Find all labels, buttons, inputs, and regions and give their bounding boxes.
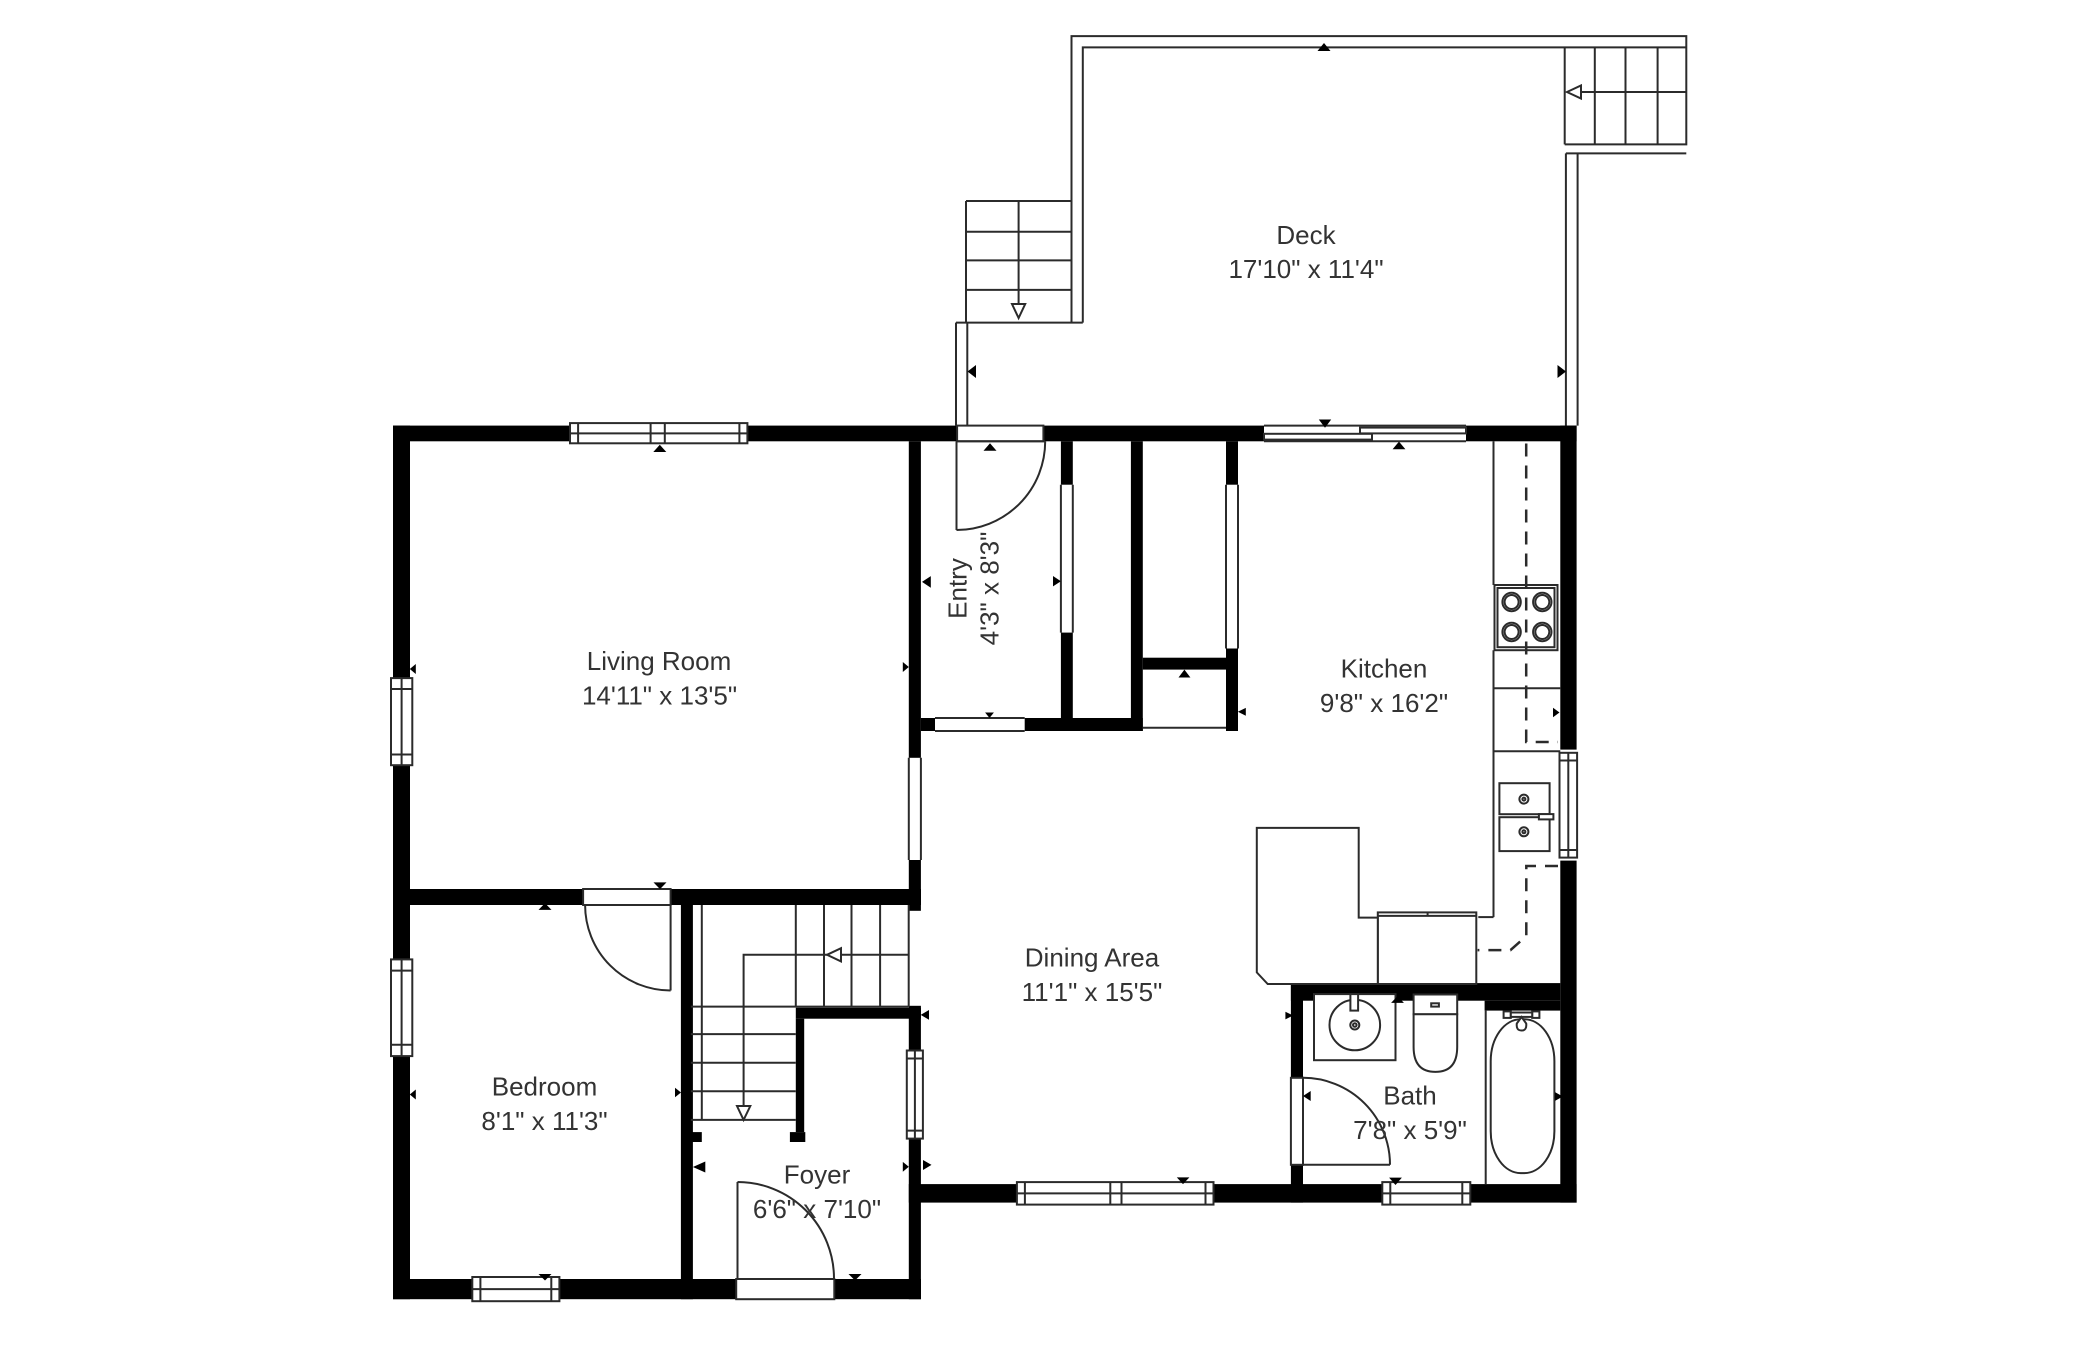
svg-text:Dining Area: Dining Area [1025, 943, 1160, 973]
svg-text:4'3" x 8'3": 4'3" x 8'3" [975, 532, 1005, 646]
svg-text:Kitchen: Kitchen [1341, 654, 1428, 684]
svg-text:6'6" x 7'10": 6'6" x 7'10" [753, 1194, 881, 1224]
svg-text:7'8" x 5'9": 7'8" x 5'9" [1353, 1115, 1467, 1145]
svg-text:14'11" x 13'5": 14'11" x 13'5" [582, 681, 737, 711]
svg-text:9'8" x 16'2": 9'8" x 16'2" [1320, 688, 1448, 718]
svg-text:Foyer: Foyer [784, 1160, 851, 1190]
svg-text:Bedroom: Bedroom [492, 1072, 598, 1102]
svg-text:8'1" x 11'3": 8'1" x 11'3" [481, 1106, 607, 1136]
svg-text:Bath: Bath [1383, 1081, 1437, 1111]
svg-text:Living Room: Living Room [587, 646, 732, 676]
svg-text:Entry: Entry [943, 558, 973, 619]
svg-text:17'10" x 11'4": 17'10" x 11'4" [1228, 254, 1383, 284]
svg-text:Deck: Deck [1276, 220, 1336, 250]
svg-text:11'1" x 15'5": 11'1" x 15'5" [1022, 977, 1163, 1007]
